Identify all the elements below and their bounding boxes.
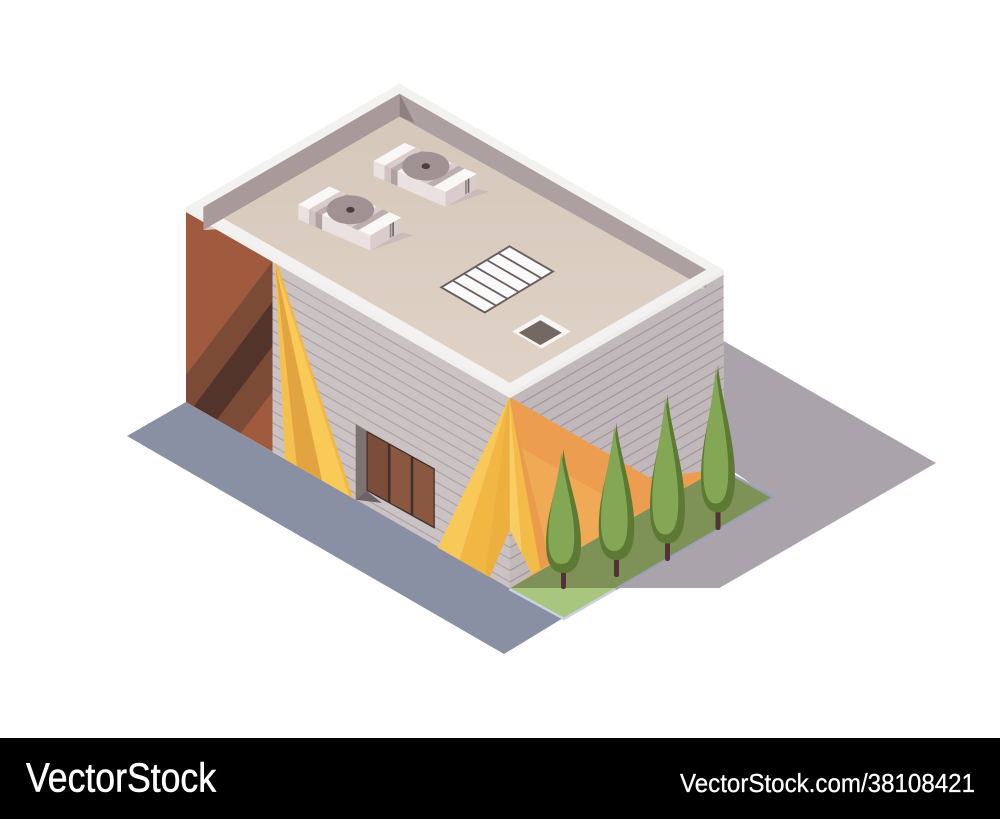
svg-text:VectorStock.com/38108421: VectorStock.com/38108421 — [680, 768, 975, 798]
svg-text:VectorStock: VectorStock — [26, 754, 216, 800]
